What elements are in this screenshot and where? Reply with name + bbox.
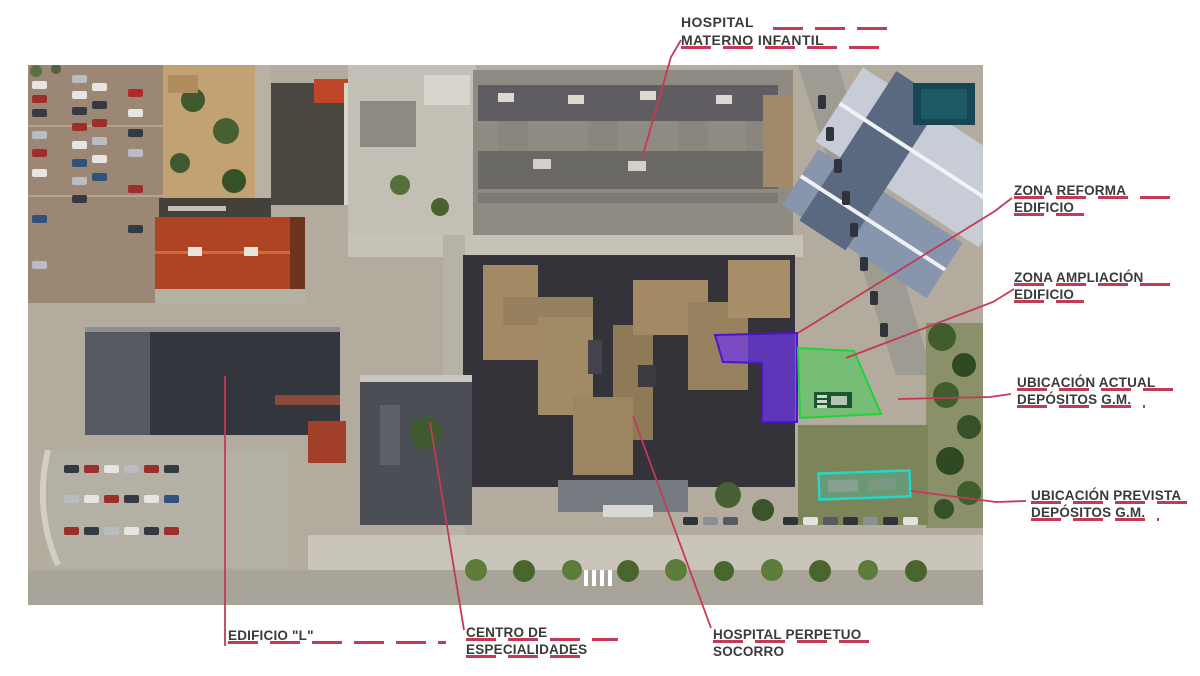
parking-northwest [28,65,163,303]
aerial-photo [28,65,983,605]
building-materno-infantil [473,70,793,238]
label-edificio-l: EDIFICIO "L" [228,627,314,644]
building-perpetuo-socorro [463,255,795,517]
label-zona-ampliacion-edificio: ZONA AMPLIACIÓN EDIFICIO [1014,269,1144,303]
dirt-lot-trees [163,65,255,205]
label-ubicacion-prevista-depositos: UBICACIÓN PREVISTA DEPÓSITOS G.M. [1031,487,1181,521]
label-centro-especialidades: CENTRO DE ESPECIALIDADES [466,624,587,658]
label-text: ESPECIALIDADES [466,641,587,658]
label-text: ZONA AMPLIACIÓN [1014,269,1144,286]
aerial-photo-drawing [28,65,983,605]
label-text: DEPÓSITOS G.M. [1017,391,1155,408]
label-text: SOCORRO [713,643,861,660]
label-hospital-materno-infantil: HOSPITAL MATERNO INFANTIL [681,13,824,49]
building-parrilla [159,198,271,220]
label-text: HOSPITAL [681,13,824,31]
label-text: HOSPITAL PERPETUO [713,626,861,643]
building-red-roof [155,217,305,305]
label-text: DEPÓSITOS G.M. [1031,504,1181,521]
building-centro-especialidades [360,375,472,525]
label-text: EDIFICIO [1014,286,1144,303]
plaza-topmiddle [348,65,476,240]
label-text: ZONA REFORMA [1014,182,1126,199]
zone-prevista-depositos-overlay [819,470,911,499]
label-text: EDIFICIO "L" [228,627,314,644]
label-text: MATERNO INFANTIL [681,31,824,49]
parking-southwest [43,450,288,568]
label-text: CENTRO DE [466,624,587,641]
label-ubicacion-actual-depositos: UBICACIÓN ACTUAL DEPÓSITOS G.M. [1017,374,1155,408]
label-hospital-perpetuo-socorro: HOSPITAL PERPETUO SOCORRO [713,626,861,660]
annotated-aerial-figure: HOSPITAL MATERNO INFANTIL ZONA REFORMA E… [0,0,1200,676]
gas-tanks-current [814,392,852,408]
label-text: EDIFICIO [1014,199,1126,216]
label-zona-reforma-edificio: ZONA REFORMA EDIFICIO [1014,182,1126,216]
label-text: UBICACIÓN PREVISTA [1031,487,1181,504]
label-text: UBICACIÓN ACTUAL [1017,374,1155,391]
